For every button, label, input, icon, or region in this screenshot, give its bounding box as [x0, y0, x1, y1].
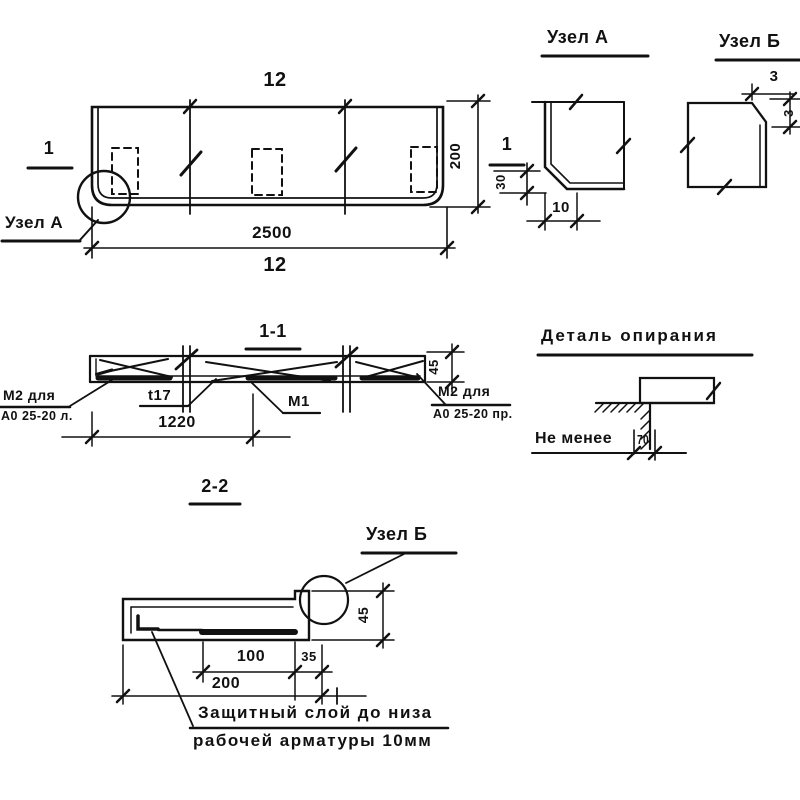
node-b-dim-top: 3 [764, 69, 784, 85]
section-2-2-dim-bar: 100 [224, 649, 278, 666]
mesh-mid-label: М1 [288, 394, 310, 410]
node-a-callout-label: Узел А [5, 214, 63, 232]
mesh-right-label-line2: А0 25-20 пр. [433, 408, 513, 421]
plan-dim-flange: 30 [494, 164, 516, 200]
mesh-left-label-line1: М2 для [3, 388, 55, 403]
cover-note-line2: рабочей арматуры 10мм [193, 732, 432, 750]
support-note-value: 70 [637, 433, 649, 447]
section-2-2-dim-depth: 45 [356, 601, 380, 629]
section-2-2-title: 2-2 [191, 477, 239, 496]
node-b-title: Узел Б [719, 32, 780, 51]
node-a-title: Узел А [547, 28, 608, 47]
bar-spacing-label: t17 [148, 388, 171, 404]
plan-dim-height: 200 [448, 134, 472, 178]
node-a-dim-bottom: 10 [546, 200, 576, 216]
plan-dim-top: 12 [253, 70, 297, 91]
node-b-dim-side: 3 [782, 101, 800, 125]
section-2-2-dim-total: 200 [198, 676, 254, 693]
section-2-2-dim-edge: 35 [296, 650, 322, 664]
drawing-linework [0, 0, 800, 800]
support-note-text: Не менее [535, 431, 612, 448]
cover-note-line1: Защитный слой до низа [198, 704, 433, 722]
mesh-left-label-line2: А0 25-20 л. [1, 410, 73, 423]
section-1-1-dim-span: 1220 [148, 415, 206, 432]
mesh-right-label-line1: М2 для [438, 384, 490, 399]
plan-dim-length: 2500 [240, 224, 304, 242]
plan-dim-bottom: 12 [252, 255, 298, 276]
blueprint-sheet: 12 1 Узел А 2500 12 200 1 30 Узел А 10 У… [0, 0, 800, 800]
section-1-1-dim-depth: 45 [427, 353, 449, 381]
section-1-1-title: 1-1 [246, 322, 300, 341]
section-mark-left: 1 [36, 139, 62, 158]
node-b-callout-label: Узел Б [366, 525, 427, 544]
support-detail-title: Деталь опирания [541, 327, 718, 345]
section-mark-right: 1 [494, 135, 520, 154]
